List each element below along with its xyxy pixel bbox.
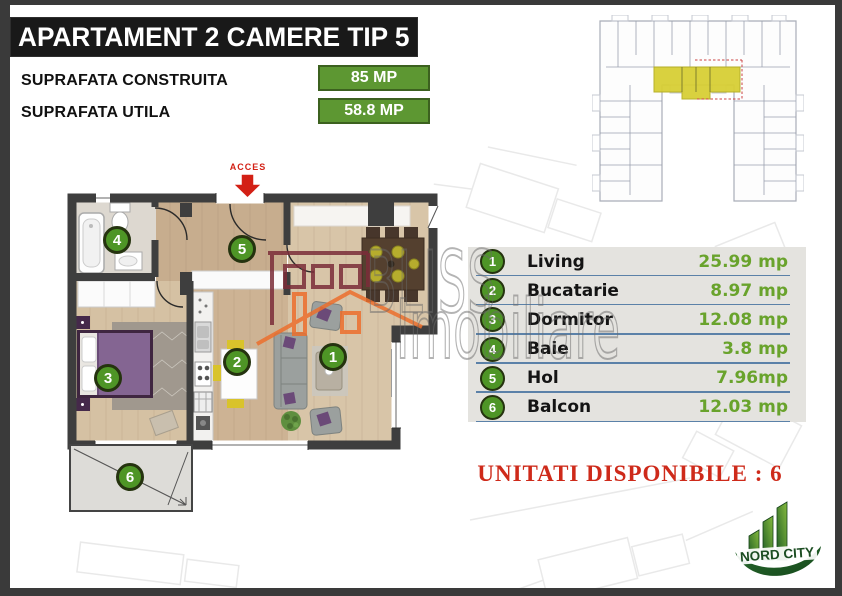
room-name: Baie — [527, 339, 569, 359]
sofa-pillow — [283, 392, 296, 405]
table-row: 3 Dormitor 12.08 mp — [468, 305, 806, 334]
room-marker-baie: 4 — [103, 226, 131, 254]
title-banner: APARTAMENT 2 CAMERE TIP 5 — [10, 17, 418, 57]
room-marker-hol: 5 — [228, 235, 256, 263]
rooms-table: 1 Living 25.99 mp 2 Bucatarie 8.97 mp 3 … — [468, 247, 806, 422]
table-row: 1 Living 25.99 mp — [468, 247, 806, 276]
row-divider — [476, 421, 790, 423]
nord-city-logo: NORD CITY — [731, 492, 827, 584]
row-number-badge: 5 — [480, 366, 505, 391]
row-number-badge: 3 — [480, 307, 505, 332]
floor-plan — [58, 150, 450, 522]
availability-text: UNITATI DISPONIBILE : 6 — [452, 461, 808, 487]
room-area: 12.08 mp — [698, 310, 788, 330]
site-plan-highlight-unit — [654, 67, 740, 99]
table-row: 4 Baie 3.8 mp — [468, 335, 806, 364]
room-marker-living: 1 — [319, 343, 347, 371]
row-number-badge: 6 — [480, 395, 505, 420]
row-number-badge: 1 — [480, 249, 505, 274]
room-marker-balcon: 6 — [116, 463, 144, 491]
room-name: Balcon — [527, 397, 591, 417]
kitchen-chair — [213, 365, 221, 381]
toilet-tank — [110, 203, 130, 212]
room-area: 12.03 mp — [698, 397, 788, 417]
table-row: 6 Balcon 12.03 mp — [468, 393, 806, 422]
bed-pillow — [82, 337, 96, 362]
suprafata-construita-badge: 85 MP — [318, 65, 430, 91]
oven — [194, 392, 212, 412]
room-name: Dormitor — [527, 310, 613, 330]
room-area: 25.99 mp — [698, 252, 788, 272]
hall-closet — [192, 271, 287, 289]
flyer-canvas: APARTAMENT 2 CAMERE TIP 5 SUPRAFATA CONS… — [0, 0, 842, 596]
structural-column — [368, 194, 394, 226]
frame-left — [0, 0, 10, 596]
row-number-badge: 2 — [480, 278, 505, 303]
access-label: ACCES — [230, 162, 267, 172]
room-area: 3.8 mp — [722, 339, 788, 359]
site-plan — [592, 15, 804, 207]
room-name: Hol — [527, 368, 559, 388]
site-plan-building-outline — [600, 21, 796, 201]
room-marker-bucatarie: 2 — [223, 348, 251, 376]
bedroom-closet — [78, 281, 155, 307]
room-name: Bucatarie — [527, 281, 619, 301]
frame-bottom — [0, 588, 842, 596]
stove — [195, 362, 211, 386]
frame-top — [0, 0, 842, 5]
suprafata-construita-label: SUPRAFATA CONSTRUITA — [21, 72, 228, 90]
row-number-badge: 4 — [480, 337, 505, 362]
suprafata-utila-label: SUPRAFATA UTILA — [21, 104, 170, 122]
frame-right — [835, 0, 842, 596]
room-name: Living — [527, 252, 585, 272]
suprafata-utila-badge: 58.8 MP — [318, 98, 430, 124]
dining-set — [362, 227, 424, 302]
room-area: 7.96mp — [716, 368, 788, 388]
table-row: 5 Hol 7.96mp — [468, 364, 806, 393]
kitchen-chair — [227, 399, 244, 408]
page-title: APARTAMENT 2 CAMERE TIP 5 — [18, 22, 409, 53]
table-row: 2 Bucatarie 8.97 mp — [468, 276, 806, 305]
room-area: 8.97 mp — [710, 281, 788, 301]
room-marker-dormitor: 3 — [94, 364, 122, 392]
